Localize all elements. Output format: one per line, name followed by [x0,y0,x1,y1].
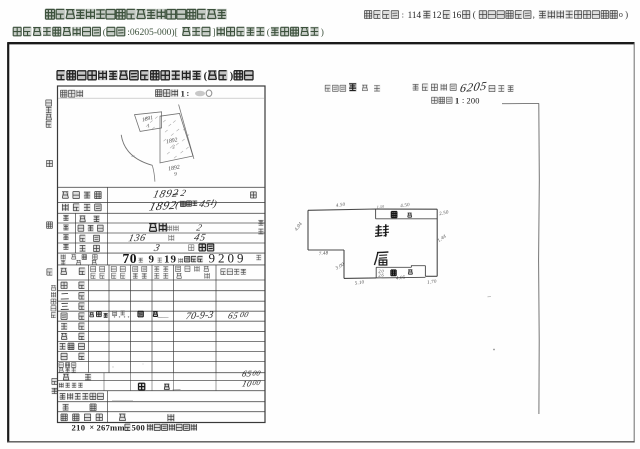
svg-text:7.48: 7.48 [319,251,329,257]
svg-text:9: 9 [149,253,155,265]
svg-text:70: 70 [123,251,138,266]
svg-text:210: 210 [72,422,86,432]
svg-text:): ) [230,71,233,82]
svg-text:1892: 1892 [148,198,178,213]
svg-text:): ) [625,10,628,20]
svg-text:o: o [619,10,623,19]
svg-text:267mm: 267mm [97,422,126,432]
svg-text:(: ( [204,71,208,82]
svg-text:,: , [533,10,535,20]
svg-text:×: × [90,423,95,432]
svg-text::: : [462,96,464,105]
svg-text::: : [402,10,404,20]
svg-text:12: 12 [432,10,442,20]
svg-text:200: 200 [467,96,480,105]
svg-text:114: 114 [408,10,422,20]
svg-text:(: ( [267,27,270,38]
svg-text:): ) [321,27,324,38]
svg-text:16: 16 [452,10,462,20]
svg-text:19: 19 [164,253,177,265]
svg-text:]: ] [212,27,215,38]
svg-text:1: 1 [181,88,185,98]
svg-text:136: 136 [127,233,147,244]
svg-text:9209: 9209 [209,250,247,265]
svg-text:70-9-3: 70-9-3 [185,310,214,322]
svg-text:2.6: 2.6 [378,273,384,278]
svg-text:(: ( [103,27,106,38]
svg-text::: : [187,89,190,98]
svg-text::06205-000)[: :06205-000)[ [127,27,178,38]
svg-text:1: 1 [455,96,459,105]
svg-text:1.50: 1.50 [377,205,385,210]
svg-text:(: ( [473,10,476,20]
svg-text:500: 500 [132,422,146,432]
